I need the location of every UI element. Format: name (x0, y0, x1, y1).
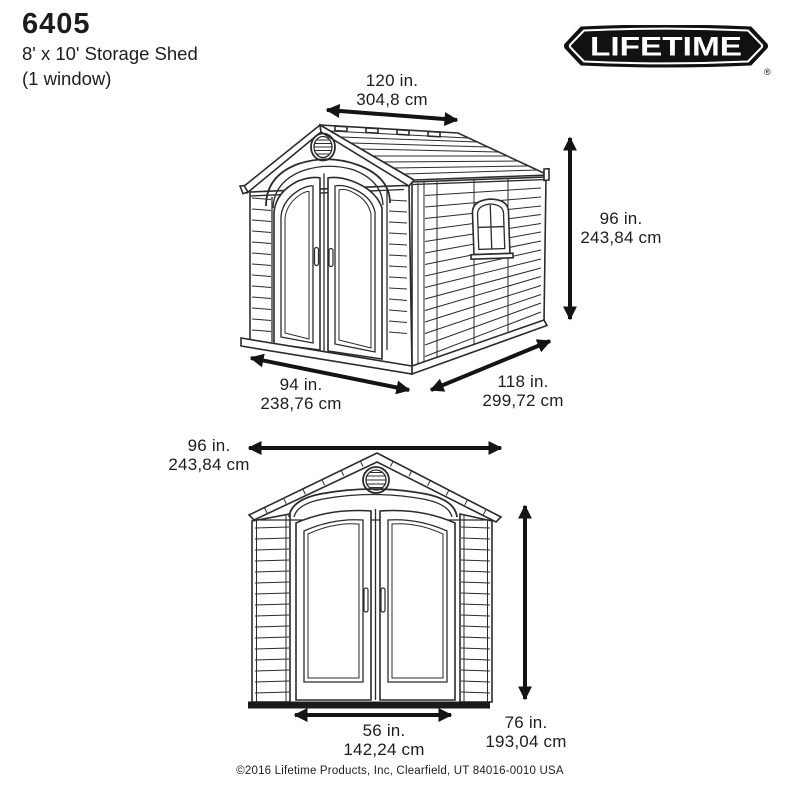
dim-roof-length-cm: 304,8 cm (356, 90, 428, 109)
door-handle-icon (364, 588, 368, 612)
diagram-line-art (0, 0, 800, 800)
spec-sheet: 6405 8' x 10' Storage Shed (1 window) LI… (0, 0, 800, 800)
dim-height: 96 in. 243,84 cm (580, 209, 661, 247)
model-number: 6405 (22, 10, 198, 39)
copyright-text: ©2016 Lifetime Products, Inc, Clearfield… (0, 765, 800, 777)
dim-roof-length: 120 in. 304,8 cm (356, 71, 428, 109)
dim-overall-width-cm: 243,84 cm (168, 455, 249, 474)
dimension-arrow-roof-length (327, 110, 457, 120)
dim-roof-length-in: 120 in. (356, 71, 428, 90)
lifetime-logo-badge: LIFETIME ® (563, 25, 773, 79)
lifetime-logo-text: LIFETIME (590, 32, 742, 62)
door-handle-icon (329, 249, 333, 267)
perspective-shed-drawing (240, 125, 549, 374)
registered-trademark-icon: ® (764, 67, 771, 77)
dim-depth-cm: 299,72 cm (482, 391, 563, 410)
product-subtitle: (1 window) (22, 69, 198, 89)
dim-height-cm: 243,84 cm (580, 228, 661, 247)
lifetime-logo: LIFETIME ® (563, 25, 773, 84)
product-title: 8' x 10' Storage Shed (22, 44, 198, 64)
dim-height-in: 96 in. (580, 209, 661, 228)
side-window (469, 198, 513, 259)
dim-front-width: 94 in. 238,76 cm (260, 375, 341, 413)
dim-door-width-in: 56 in. (343, 721, 424, 740)
dim-door-width: 56 in. 142,24 cm (343, 721, 424, 759)
dim-front-width-cm: 238,76 cm (260, 394, 341, 413)
dim-overall-width: 96 in. 243,84 cm (168, 436, 249, 474)
dim-front-width-in: 94 in. (260, 375, 341, 394)
dim-door-height-cm: 193,04 cm (485, 732, 566, 751)
dim-door-height: 76 in. 193,04 cm (485, 713, 566, 751)
front-view-shed-drawing (248, 453, 501, 709)
header: 6405 8' x 10' Storage Shed (1 window) (22, 10, 198, 89)
dim-depth: 118 in. 299,72 cm (482, 372, 563, 410)
door-handle-icon (315, 248, 319, 266)
dim-door-width-cm: 142,24 cm (343, 740, 424, 759)
gable-vent-icon (311, 134, 335, 161)
dim-overall-width-in: 96 in. (168, 436, 249, 455)
door-handle-icon (381, 588, 385, 612)
dim-depth-in: 118 in. (482, 372, 563, 391)
dim-door-height-in: 76 in. (485, 713, 566, 732)
